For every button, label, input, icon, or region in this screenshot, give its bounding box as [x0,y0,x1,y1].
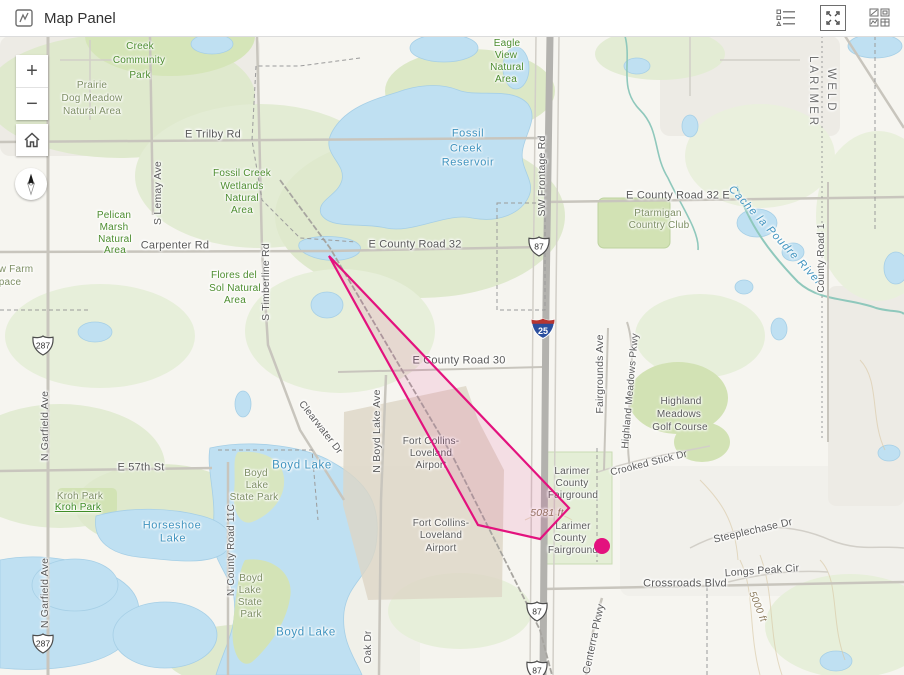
legend-icon[interactable] [774,6,798,30]
grid-icon[interactable] [868,6,892,30]
map-panel-icon [14,8,34,28]
expand-icon[interactable] [820,5,846,31]
zoom-in-button[interactable]: + [16,55,48,88]
zoom-out-button[interactable]: − [16,88,48,120]
page-title: Map Panel [44,10,116,27]
panel-header: Map Panel [0,0,904,37]
basemap-art [0,36,904,675]
home-button[interactable] [16,124,48,156]
map-canvas[interactable]: CreekCommunityParkEagleViewNaturalAreaFo… [0,36,904,675]
compass-button[interactable] [15,168,47,200]
compass-north-icon [18,171,44,197]
zoom-controls: + − [16,55,48,120]
home-icon [23,131,41,149]
